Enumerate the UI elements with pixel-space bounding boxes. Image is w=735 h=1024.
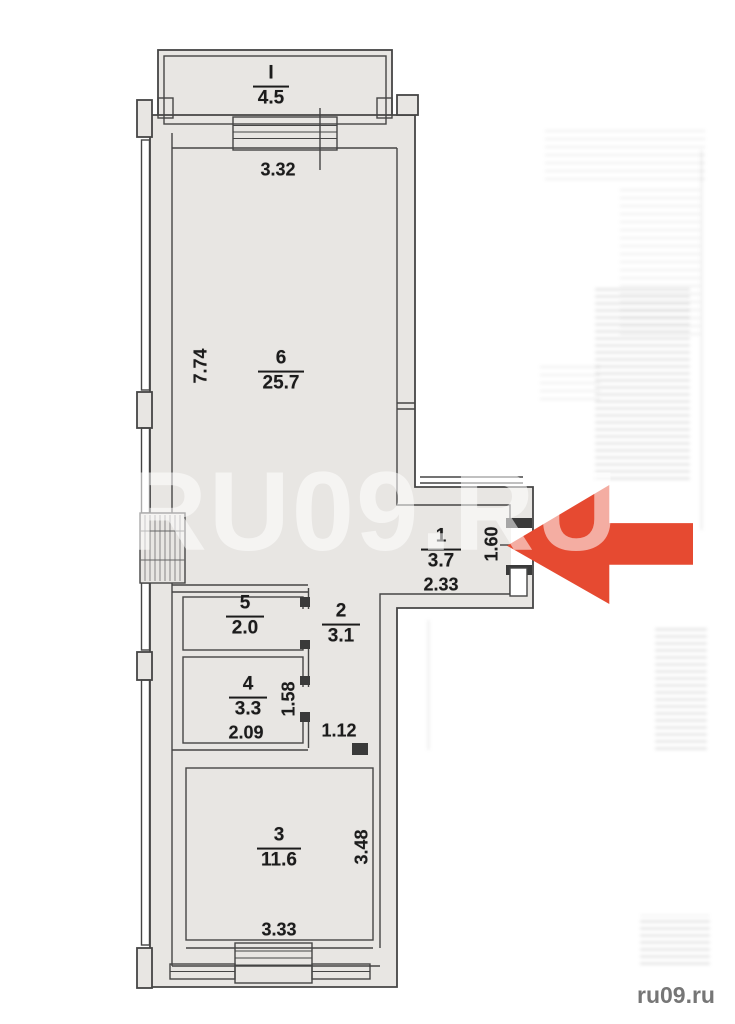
room-area: 3.7: [428, 552, 454, 572]
floor-plan: I 4.5 6 25.7 1 3.7 2 3.1 5 2.0 4 3.3 3 1…: [0, 0, 735, 1024]
room-area: 3.3: [235, 700, 261, 720]
dimension-label: 1.58: [279, 681, 300, 716]
dimension-label: 3.32: [260, 160, 295, 181]
room-number: 5: [240, 594, 251, 614]
room-2-label: 2 3.1: [322, 602, 360, 647]
dimension-label: 2.33: [423, 575, 458, 596]
room-number: 2: [336, 602, 347, 622]
dimension-label: 1.60: [482, 526, 503, 561]
room-area: 2.0: [232, 619, 258, 639]
room-3-label: 3 11.6: [257, 826, 301, 871]
room-number: 1: [436, 527, 447, 547]
room-area: 3.1: [328, 627, 354, 647]
dimension-label: 3.48: [352, 829, 373, 864]
dimension-label: 3.33: [261, 920, 296, 941]
room-number: 3: [274, 826, 285, 846]
room-5-label: 5 2.0: [226, 594, 264, 639]
room-1-label: 1 3.7: [421, 527, 461, 572]
room-area: 25.7: [263, 374, 300, 394]
site-credit: ru09.ru: [637, 982, 715, 1009]
dimension-label: 1.12: [321, 721, 356, 742]
room-number: 6: [276, 349, 287, 369]
room-6-label: 6 25.7: [258, 349, 304, 394]
room-number: I: [268, 64, 273, 84]
room-area: 11.6: [261, 851, 297, 871]
floorplan-drawing: [0, 0, 735, 1024]
room-area: 4.5: [258, 89, 284, 109]
dimension-label: 2.09: [228, 723, 263, 744]
room-balcony-label: I 4.5: [253, 64, 289, 109]
dimension-label: 7.74: [191, 348, 212, 383]
room-number: 4: [243, 675, 254, 695]
room-4-label: 4 3.3: [229, 675, 267, 720]
